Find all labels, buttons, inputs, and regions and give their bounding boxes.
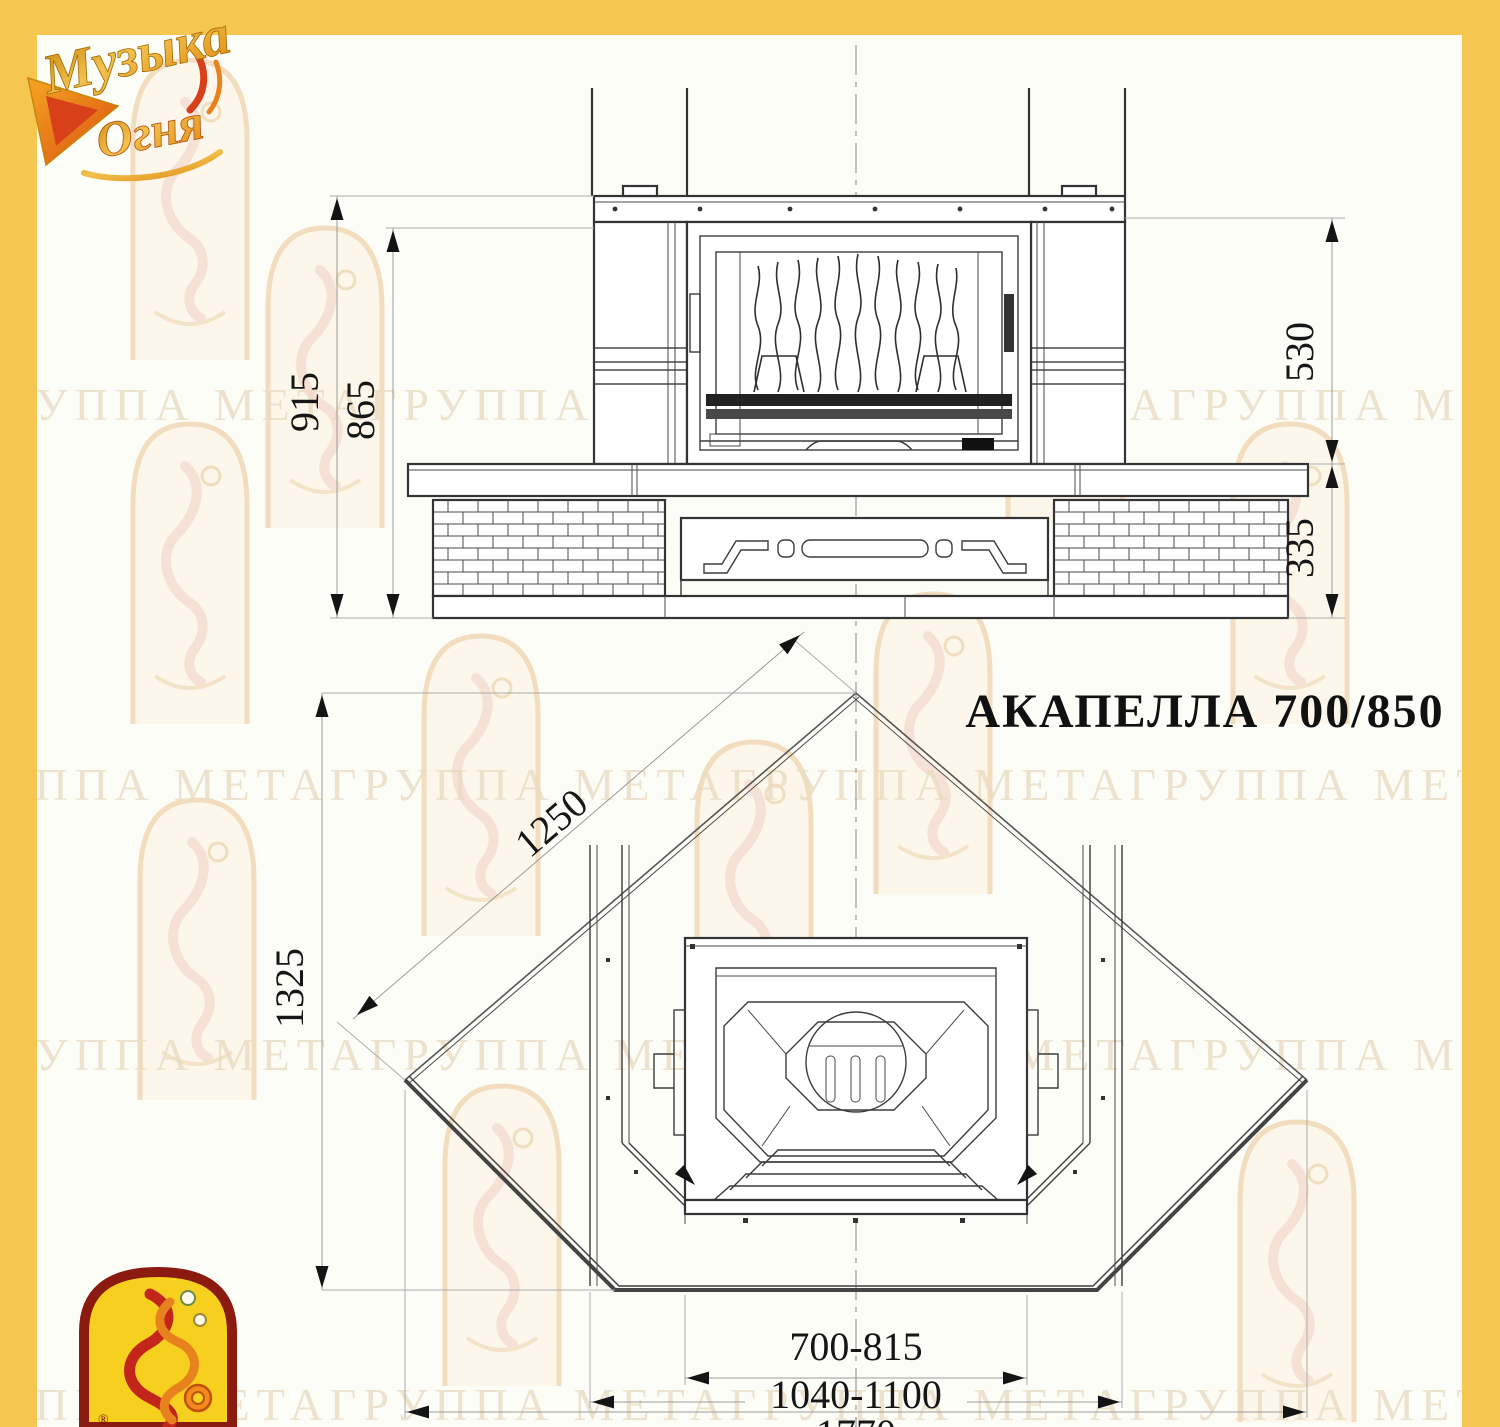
- mantel-top-plate: [594, 186, 1125, 222]
- bench-slab: [408, 464, 1308, 496]
- page-title: АКАПЕЛЛА 700/850: [965, 685, 1444, 738]
- ember-bar-2: [706, 409, 1012, 419]
- dimension-1325: 1325: [267, 948, 312, 1028]
- emblem-spark: [181, 1291, 195, 1305]
- chimney-lines: [592, 88, 1125, 196]
- right-pillar: [1031, 222, 1125, 464]
- bottom-logo-emblem: ®: [84, 1272, 232, 1427]
- front-elevation-view: 915 865 530 335: [282, 88, 1345, 618]
- door-handle: [962, 438, 994, 450]
- dimension-530: 530: [1277, 322, 1322, 382]
- carved-center-band: [681, 518, 1048, 596]
- technical-drawing-page: ГРУППА МЕТАГРУППА МЕТАГРУППА МЕТАГРУППА …: [0, 0, 1500, 1427]
- emblem-sun-core: [192, 1392, 204, 1404]
- right-hinge: [1004, 294, 1014, 352]
- ember-bar: [706, 394, 1012, 406]
- frame-left: [0, 0, 37, 1427]
- unit-plan: [654, 938, 1058, 1224]
- emblem-spark-2: [194, 1314, 206, 1326]
- base-plinth: [433, 500, 1288, 618]
- drawing-svg: ГРУППА МЕТАГРУППА МЕТАГРУППА МЕТАГРУППА …: [0, 0, 1500, 1427]
- dimension-865: 865: [338, 380, 383, 440]
- dimension-915: 915: [282, 372, 327, 432]
- left-pillar: [594, 222, 687, 464]
- dimension-700-815: 700-815: [789, 1324, 922, 1369]
- dimension-1770: 1770: [816, 1411, 896, 1427]
- dimension-335: 335: [1277, 518, 1322, 578]
- registered-mark: ®: [98, 1413, 109, 1427]
- firebox: [687, 222, 1031, 464]
- frame-right: [1462, 0, 1500, 1427]
